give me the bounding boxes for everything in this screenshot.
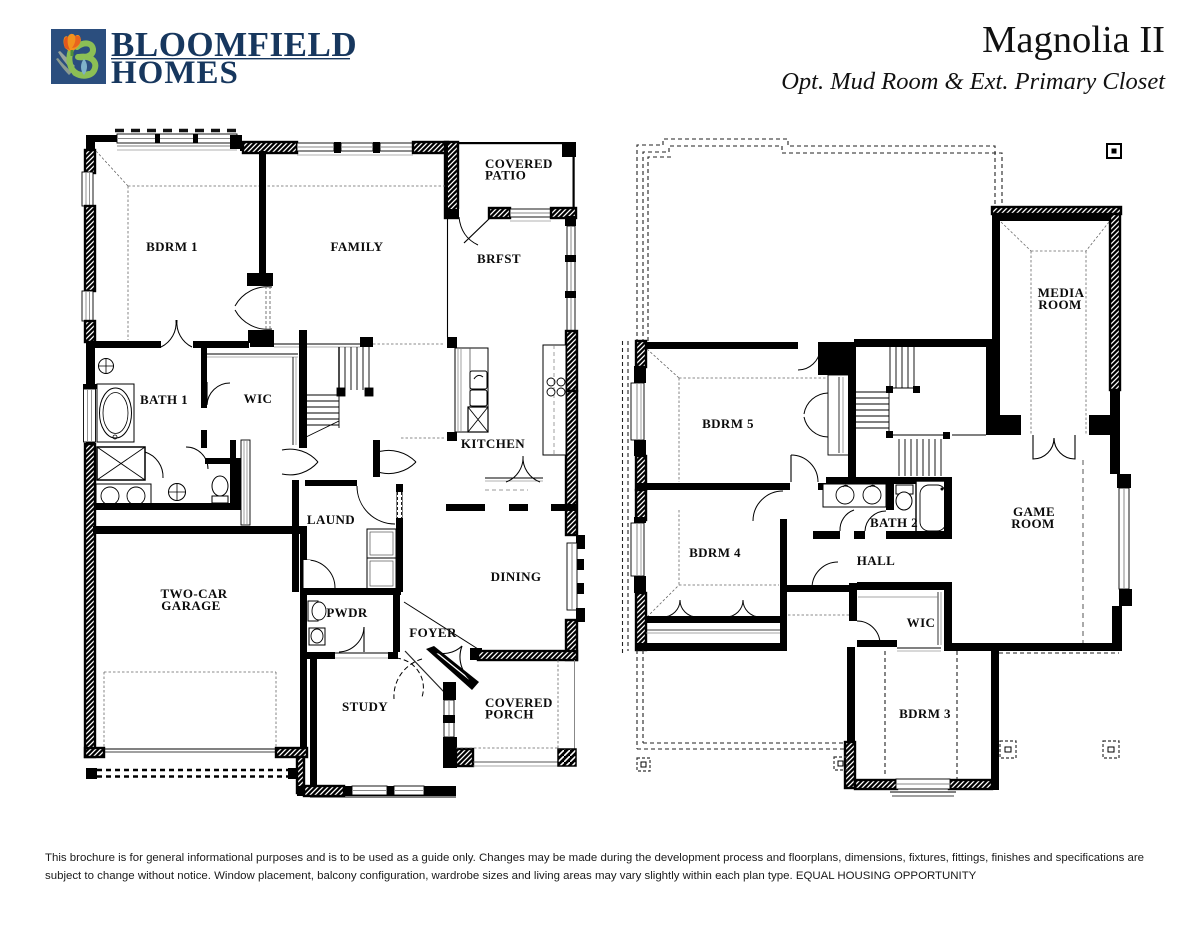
svg-text:PWDR: PWDR	[326, 605, 368, 620]
svg-text:BRFST: BRFST	[477, 251, 521, 266]
svg-text:WIC: WIC	[244, 391, 273, 406]
svg-text:BATH 1: BATH 1	[140, 392, 188, 407]
svg-text:ROOM: ROOM	[1011, 516, 1054, 531]
svg-text:HALL: HALL	[857, 553, 895, 568]
svg-text:HOMES: HOMES	[111, 55, 239, 91]
svg-text:WIC: WIC	[907, 615, 936, 630]
svg-text:BATH 2: BATH 2	[870, 515, 918, 530]
svg-text:BDRM 3: BDRM 3	[899, 706, 951, 721]
svg-text:BDRM 4: BDRM 4	[689, 545, 741, 560]
svg-text:FAMILY: FAMILY	[331, 239, 384, 254]
svg-text:Magnolia II: Magnolia II	[982, 19, 1165, 61]
svg-text:PATIO: PATIO	[485, 168, 526, 183]
svg-text:BDRM 5: BDRM 5	[702, 416, 754, 431]
svg-text:This brochure is for general i: This brochure is for general information…	[45, 852, 1144, 864]
svg-text:Opt. Mud Room & Ext. Primary C: Opt. Mud Room & Ext. Primary Closet	[781, 68, 1166, 95]
svg-text:STUDY: STUDY	[342, 699, 388, 714]
svg-text:KITCHEN: KITCHEN	[461, 436, 525, 451]
svg-text:GARAGE: GARAGE	[161, 598, 220, 613]
svg-text:LAUND: LAUND	[307, 512, 355, 527]
svg-text:PORCH: PORCH	[485, 707, 534, 722]
svg-text:BDRM 1: BDRM 1	[146, 239, 198, 254]
svg-text:ROOM: ROOM	[1038, 297, 1081, 312]
svg-text:DINING: DINING	[491, 569, 542, 584]
svg-text:subject to change without noti: subject to change without notice. Window…	[45, 870, 977, 882]
svg-text:FOYER: FOYER	[409, 625, 457, 640]
